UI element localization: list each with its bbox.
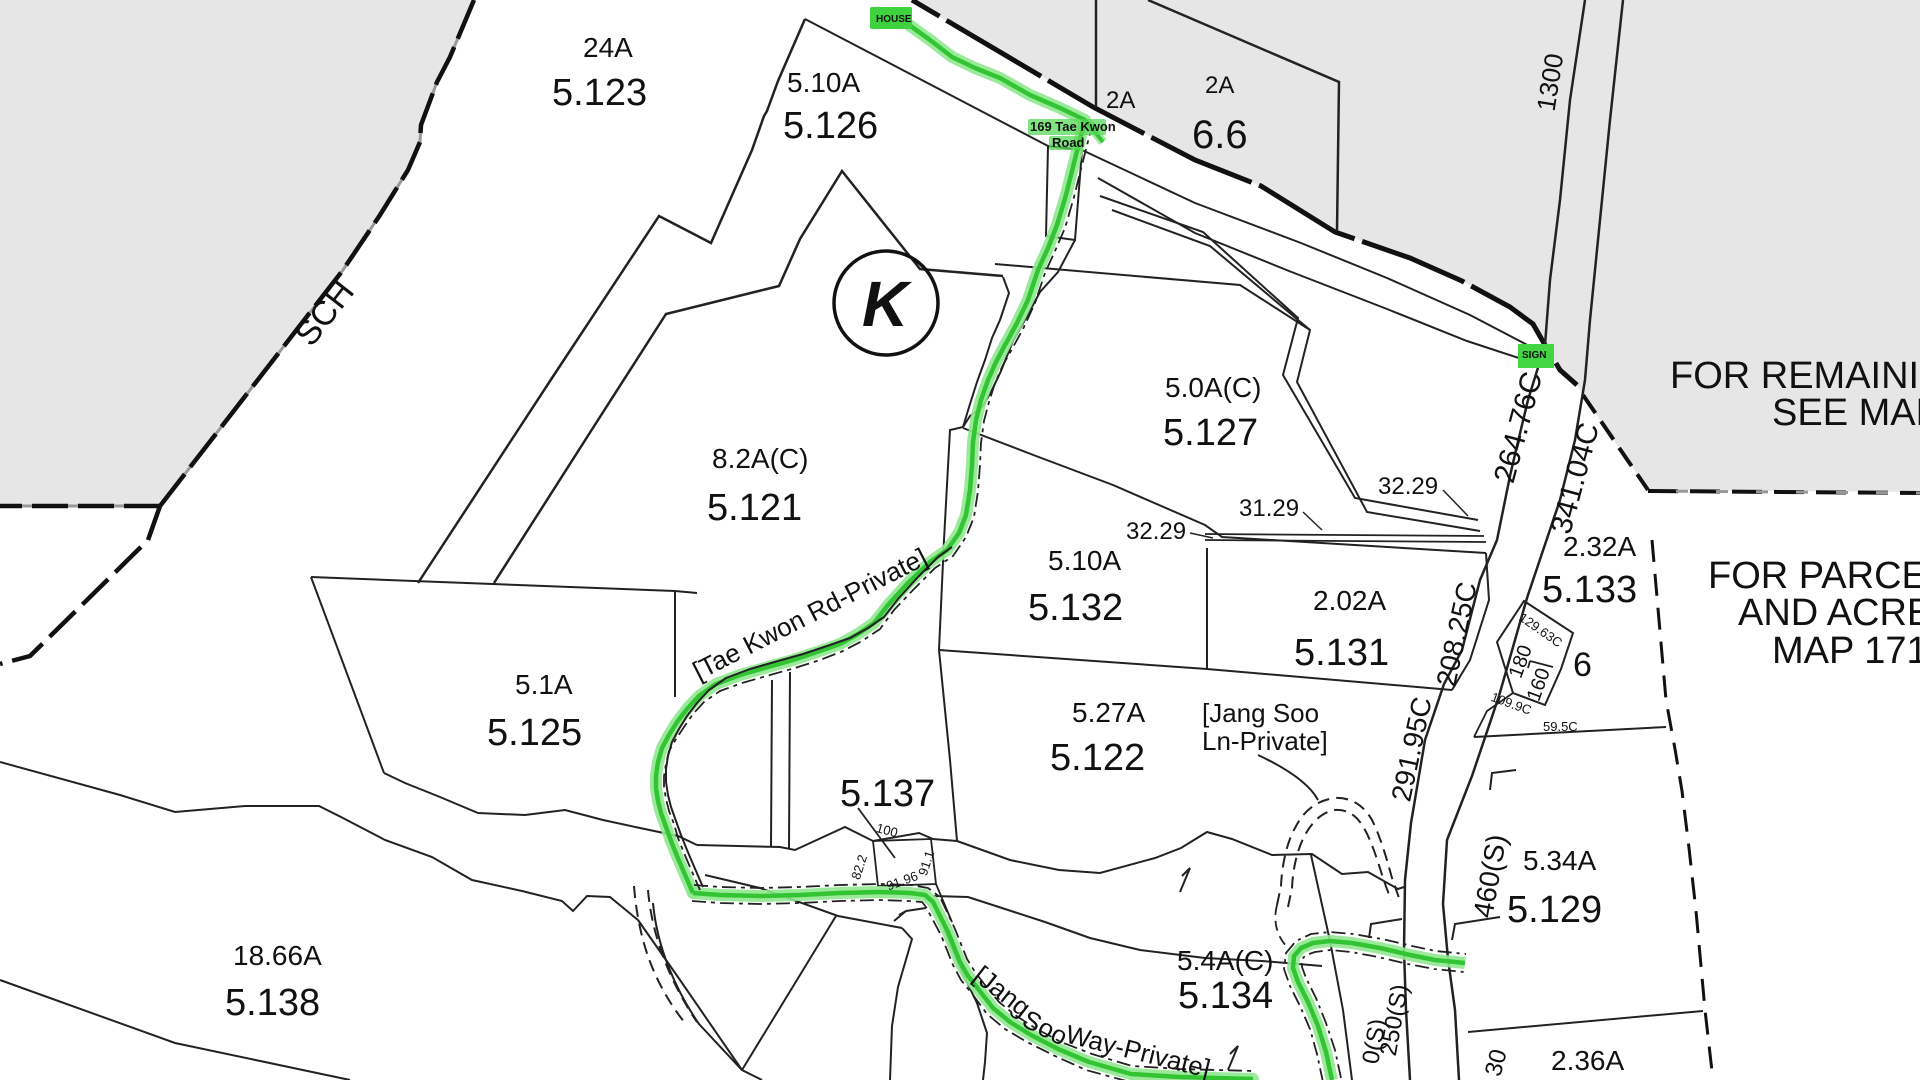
svg-text:5.132: 5.132	[1028, 587, 1123, 629]
svg-text:SEE MAP O: SEE MAP O	[1772, 392, 1920, 434]
svg-text:169 Tae Kwon: 169 Tae Kwon	[1030, 119, 1116, 134]
svg-text:24A: 24A	[583, 32, 633, 63]
svg-text:5.10A: 5.10A	[1048, 545, 1121, 576]
svg-text:Ln-Private]: Ln-Private]	[1202, 726, 1328, 756]
svg-text:32.29: 32.29	[1126, 518, 1186, 545]
svg-text:5.127: 5.127	[1163, 412, 1258, 454]
svg-text:6.6: 6.6	[1192, 113, 1248, 157]
svg-text:Road: Road	[1052, 135, 1085, 150]
svg-text:5.122: 5.122	[1050, 737, 1145, 779]
svg-text:5.121: 5.121	[707, 487, 802, 529]
svg-text:18.66A: 18.66A	[233, 940, 322, 971]
svg-text:AND ACREAGE: AND ACREAGE	[1738, 592, 1920, 634]
svg-text:MAP 171.05: MAP 171.05	[1772, 630, 1920, 672]
svg-text:5.137: 5.137	[840, 773, 935, 815]
svg-text:5.1A: 5.1A	[515, 669, 573, 700]
svg-text:5.125: 5.125	[487, 712, 582, 754]
svg-text:HOUSE: HOUSE	[876, 14, 912, 25]
svg-text:31.29: 31.29	[1239, 495, 1299, 522]
svg-text:5.10A: 5.10A	[787, 67, 860, 98]
svg-text:5.123: 5.123	[552, 72, 647, 114]
svg-text:5.138: 5.138	[225, 982, 320, 1024]
svg-text:2.02A: 2.02A	[1313, 585, 1386, 616]
svg-text:2.36A: 2.36A	[1551, 1045, 1624, 1076]
svg-text:2A: 2A	[1106, 87, 1135, 114]
svg-text:K: K	[862, 268, 913, 340]
svg-text:5.131: 5.131	[1294, 632, 1389, 674]
svg-text:SIGN: SIGN	[1522, 350, 1546, 361]
svg-text:FOR REMAINING: FOR REMAINING	[1670, 355, 1920, 397]
svg-text:5.0A(C): 5.0A(C)	[1165, 372, 1261, 403]
svg-text:5.27A: 5.27A	[1072, 697, 1145, 728]
svg-text:FOR PARCELS: FOR PARCELS	[1708, 555, 1920, 597]
svg-text:5.4A(C): 5.4A(C)	[1177, 945, 1273, 976]
svg-text:[Jang Soo: [Jang Soo	[1202, 698, 1319, 728]
svg-text:2A: 2A	[1205, 72, 1234, 99]
svg-text:5.133: 5.133	[1542, 569, 1637, 611]
svg-text:5.34A: 5.34A	[1523, 845, 1596, 876]
svg-text:5.126: 5.126	[783, 105, 878, 147]
svg-text:8.2A(C): 8.2A(C)	[712, 443, 808, 474]
svg-text:6: 6	[1573, 646, 1592, 684]
svg-text:5.129: 5.129	[1507, 889, 1602, 931]
svg-text:32.29: 32.29	[1378, 473, 1438, 500]
svg-text:5.134: 5.134	[1178, 975, 1273, 1017]
svg-text:59.5C: 59.5C	[1543, 719, 1578, 734]
